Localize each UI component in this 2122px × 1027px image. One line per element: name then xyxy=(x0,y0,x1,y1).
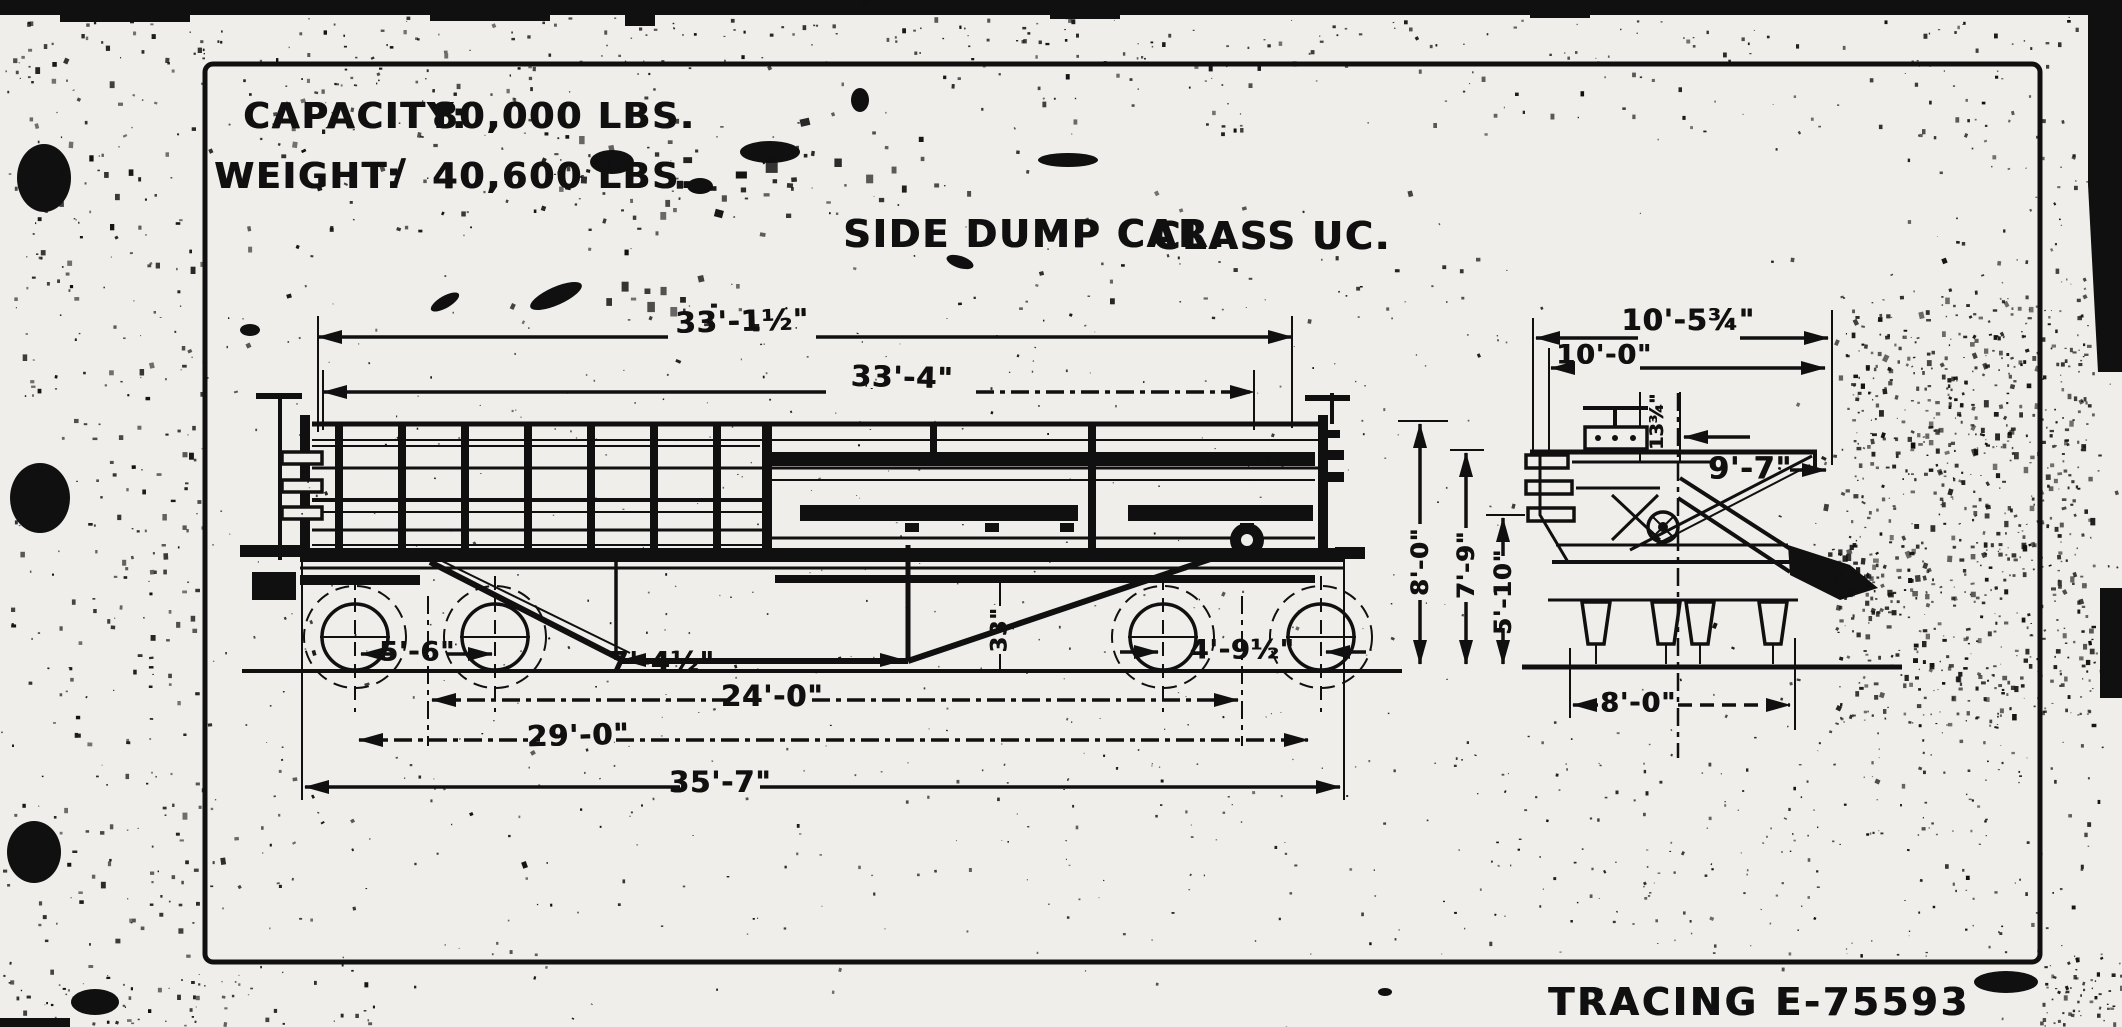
dim-right-truck-wheelbase: 4'-9½" xyxy=(1189,635,1294,666)
dim-height-rail-to-top: 8'-0" xyxy=(1406,528,1434,596)
dim-height-rail-to-side: 7'-9" xyxy=(1452,531,1480,599)
dim-side-offset: 13¾" xyxy=(1646,394,1668,450)
scanned-drawing-page: CAPACITY: 80,000 LBS. WEIGHT: / 40,600 L… xyxy=(0,0,2122,1027)
dim-body-width: 10'-0" xyxy=(1556,340,1652,371)
dim-truck-centers: 24'-0" xyxy=(721,679,824,713)
hole-punches xyxy=(7,144,71,883)
weight-value: 40,600 LBS. xyxy=(432,156,695,197)
weight-separator: / xyxy=(392,152,407,193)
drawing-linework xyxy=(0,0,2122,1027)
dim-height-rail-to-floor: 5'-10" xyxy=(1489,549,1517,635)
dim-body-length: 33'-4" xyxy=(850,359,953,395)
dim-truck-width: 8'-0" xyxy=(1600,688,1676,719)
capacity-value: 80,000 LBS. xyxy=(432,96,695,137)
dim-dump-mechanism: 7'-4½" xyxy=(609,647,714,678)
dim-overall-width: 10'-5¾" xyxy=(1621,303,1755,337)
dim-overall-length: 35'-7" xyxy=(669,765,772,799)
dim-outer-axle-spread: 29'-0" xyxy=(526,717,629,754)
dim-left-truck-wheelbase: 5'-6" xyxy=(379,637,455,668)
note-wheel-diameter: 33" xyxy=(988,607,1013,652)
end-view-wheels xyxy=(1582,602,1787,664)
dump-mechanism xyxy=(430,523,1264,661)
dim-overall-top: 33'-1½" xyxy=(675,302,809,340)
drawing-class: CLASS UC. xyxy=(1152,214,1391,258)
tracing-number: TRACING E-75593 xyxy=(1548,980,1970,1024)
side-view-drawing xyxy=(240,316,1402,800)
weight-label: WEIGHT: xyxy=(214,156,402,197)
dim-chute-reach: 9'-7" xyxy=(1708,452,1792,487)
